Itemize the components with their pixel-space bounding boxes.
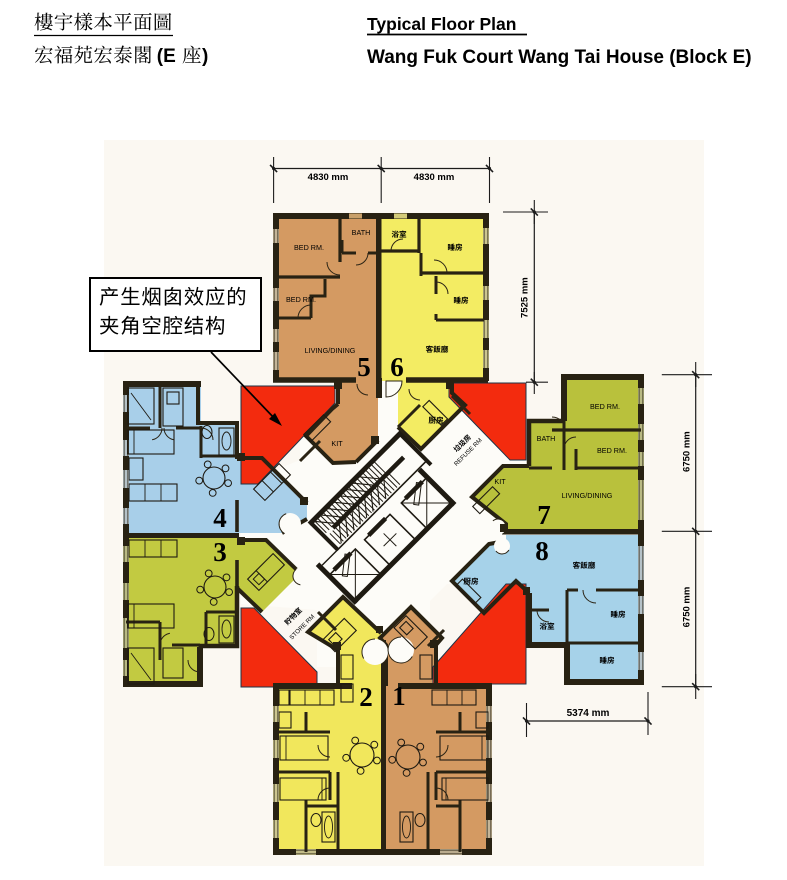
svg-text:BATH: BATH bbox=[537, 434, 556, 443]
svg-text:LIVING/DINING: LIVING/DINING bbox=[562, 491, 613, 500]
svg-text:7: 7 bbox=[537, 500, 551, 530]
svg-text:5374 mm: 5374 mm bbox=[567, 708, 610, 719]
svg-text:): ) bbox=[202, 46, 208, 67]
svg-text:LIVING/DINING: LIVING/DINING bbox=[305, 346, 356, 355]
svg-text:BATH: BATH bbox=[352, 228, 371, 237]
svg-text:6: 6 bbox=[390, 352, 404, 382]
svg-text:8: 8 bbox=[535, 536, 549, 566]
svg-text:5: 5 bbox=[357, 352, 371, 382]
svg-text:2: 2 bbox=[359, 682, 373, 712]
svg-text:BED RM.: BED RM. bbox=[294, 243, 324, 252]
svg-text:4: 4 bbox=[213, 503, 227, 533]
svg-text:Typical Floor Plan: Typical Floor Plan bbox=[367, 14, 516, 34]
svg-text:1: 1 bbox=[392, 681, 406, 711]
svg-text:BED RM.: BED RM. bbox=[590, 402, 620, 411]
svg-text:Wang Fuk Court Wang Tai House: Wang Fuk Court Wang Tai House (Block E) bbox=[367, 47, 752, 68]
svg-text:BED RM.: BED RM. bbox=[286, 295, 316, 304]
svg-text:KIT: KIT bbox=[494, 477, 506, 486]
svg-text:4830 mm: 4830 mm bbox=[414, 172, 455, 183]
svg-text:6750 mm: 6750 mm bbox=[682, 431, 693, 472]
svg-text:4830 mm: 4830 mm bbox=[308, 172, 349, 183]
svg-text:KIT: KIT bbox=[331, 439, 343, 448]
svg-text:(E: (E bbox=[157, 46, 176, 67]
svg-text:BED RM.: BED RM. bbox=[597, 446, 627, 455]
svg-text:6750 mm: 6750 mm bbox=[682, 587, 693, 628]
svg-text:3: 3 bbox=[213, 537, 227, 567]
svg-text:7525 mm: 7525 mm bbox=[520, 277, 531, 318]
